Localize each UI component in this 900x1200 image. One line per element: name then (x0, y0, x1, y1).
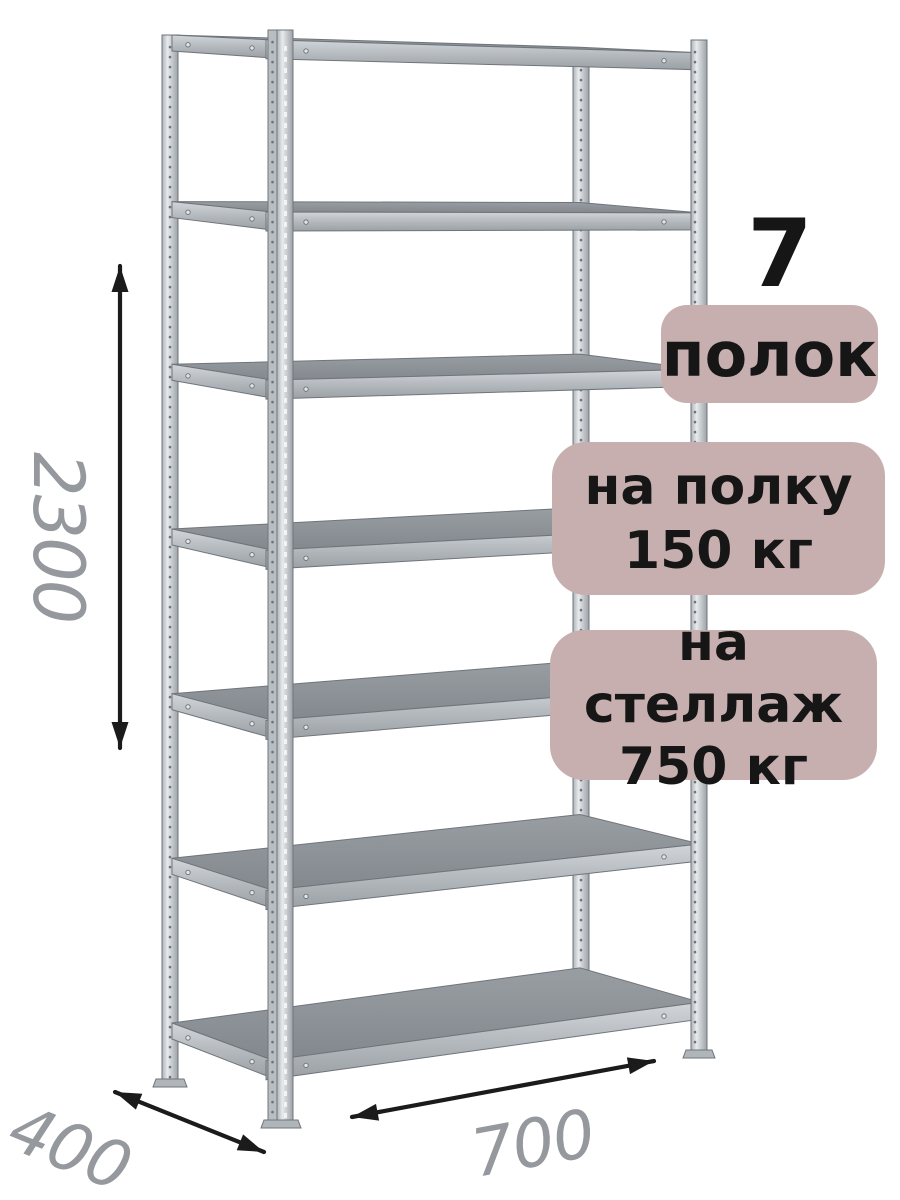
foot-plate (153, 1079, 187, 1087)
per-shelf-load-line2: 150 кг (624, 519, 813, 583)
rivet (662, 220, 666, 224)
arrowhead (115, 1092, 142, 1110)
product-image: 2300 400 700 7 полок на полку 150 кг на … (0, 0, 900, 1200)
rivet (662, 855, 666, 859)
rivet (304, 894, 308, 898)
per-rack-load-line2: 750 кг (619, 736, 808, 798)
rivet (304, 220, 308, 224)
rivet (304, 556, 308, 560)
rivet (186, 210, 190, 214)
shelf-front-beam (266, 212, 700, 231)
foot-plate (261, 1120, 301, 1128)
arrowhead (112, 266, 129, 292)
per-shelf-load-badge: на полку 150 кг (552, 442, 885, 595)
shelf-count-number: 7 (742, 208, 818, 302)
rivet (250, 1059, 254, 1063)
rivet (250, 890, 254, 894)
per-shelf-load-line1: на полку (584, 455, 852, 519)
per-rack-load-badge: на стеллаж 750 кг (550, 630, 877, 780)
rivet (304, 1063, 308, 1067)
arrowhead (112, 722, 129, 748)
height-dimension-label: 2300 (19, 452, 96, 622)
rivet (186, 705, 190, 709)
rivet (662, 59, 666, 63)
foot-plate (683, 1050, 715, 1058)
height-arrow (112, 266, 129, 748)
rivet (250, 384, 254, 388)
per-rack-load-line1: на стеллаж (550, 612, 877, 736)
rivet (186, 870, 190, 874)
width-arrow-line (352, 1061, 654, 1117)
rivet (186, 1036, 190, 1040)
arrowhead (237, 1134, 264, 1152)
shelf-count-badge: полок (661, 305, 878, 403)
rivet (304, 725, 308, 729)
rivet (250, 553, 254, 557)
shelving-unit-graphic (0, 0, 900, 1200)
shelf-count-label: полок (662, 318, 878, 391)
rivet (186, 539, 190, 543)
post-back-left (162, 35, 178, 1087)
rivet (250, 217, 254, 221)
rivet (250, 46, 254, 50)
rivet (186, 43, 190, 47)
rivet (662, 1014, 666, 1018)
rivet (250, 722, 254, 726)
rivet (186, 374, 190, 378)
rivet (304, 387, 308, 391)
rivet (304, 49, 308, 53)
